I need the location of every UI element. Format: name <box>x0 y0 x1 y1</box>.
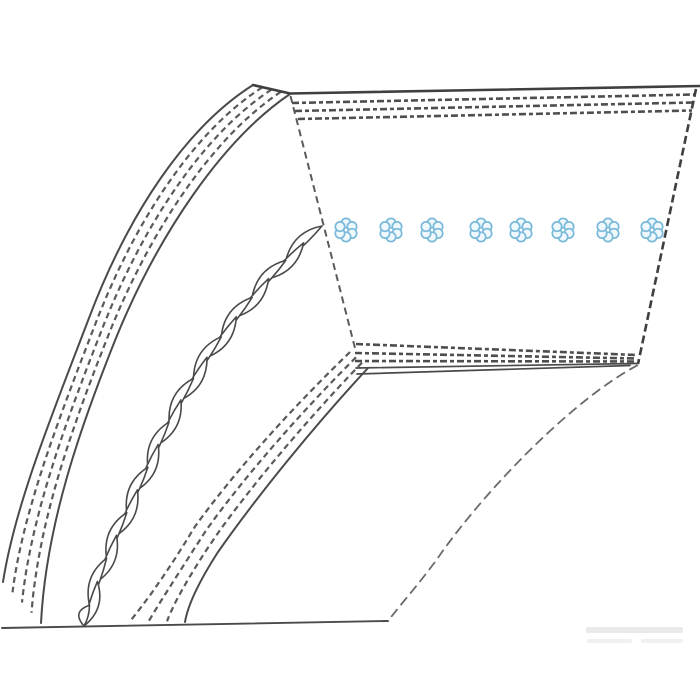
watermark-bar-3 <box>641 639 683 643</box>
cord-bundle-3 <box>421 218 442 241</box>
cord-filament-circle <box>641 222 650 231</box>
face-top-ply-row-3 <box>298 111 692 120</box>
inner_edge_band-ply-dashed-curve-3 <box>167 363 362 622</box>
cord-filament-circle <box>597 222 606 231</box>
cord-filament-circle <box>510 222 519 231</box>
cord-filament-circle <box>470 222 479 231</box>
cord-bundle-4 <box>470 218 491 241</box>
cord-bundle-1 <box>335 218 356 241</box>
face-bottom-ply-row-3 <box>355 361 634 362</box>
outer_edge_band-ply-dashed-curve-2 <box>22 90 272 603</box>
twisted-cord <box>79 226 322 626</box>
cord-filament-circle <box>421 222 430 231</box>
cord-filament-circle <box>380 222 389 231</box>
bottom-ground-line <box>2 621 388 628</box>
watermark <box>586 627 683 643</box>
belt-figure-svg: V-belt technical line illustration <box>0 0 700 700</box>
face-top-ply-row-1 <box>292 95 695 104</box>
cord-bundle-7 <box>597 218 618 241</box>
cord-bundle-5 <box>510 218 531 241</box>
face-top-ply-row-2 <box>295 103 693 112</box>
face-top-edge <box>253 85 700 94</box>
inner-surface-sweep-curve <box>388 365 638 621</box>
cord-filament-circle <box>552 222 561 231</box>
cord-bundles <box>335 218 662 241</box>
outer_edge_band-inner-solid-edge <box>41 94 290 623</box>
cord-filament-circle <box>335 222 344 231</box>
inner_edge_band-inner-solid-edge <box>185 368 368 622</box>
watermark-bar-2 <box>587 639 632 643</box>
cord-bundle-2 <box>380 218 401 241</box>
cord-bundle-8 <box>641 218 662 241</box>
watermark-bar-1 <box>586 627 683 633</box>
outer_edge_band-ply-dashed-curve-3 <box>32 92 281 613</box>
belt-illustration: V-belt technical line illustration <box>0 0 700 700</box>
face-bottom-ply-row-1 <box>356 344 637 355</box>
cord-bundle-6 <box>552 218 573 241</box>
